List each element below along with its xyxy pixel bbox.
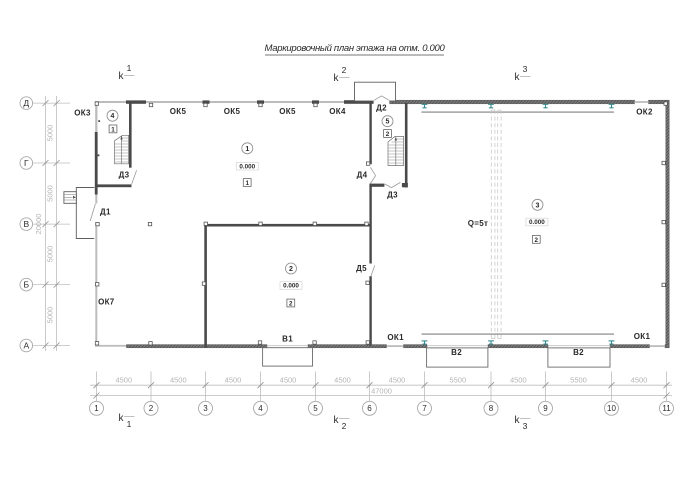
svg-text:А: А [23,341,29,351]
svg-text:3: 3 [203,404,208,413]
svg-text:4500: 4500 [280,376,297,385]
svg-text:Д4: Д4 [357,170,368,179]
svg-text:3: 3 [523,64,528,74]
svg-text:ОК5: ОК5 [279,107,296,116]
svg-text:5: 5 [386,119,390,126]
svg-text:10: 10 [607,404,616,413]
svg-text:1: 1 [245,146,249,153]
svg-text:1: 1 [127,419,132,429]
svg-text:1: 1 [127,63,132,73]
svg-text:5500: 5500 [449,376,466,385]
svg-text:4500: 4500 [334,376,351,385]
svg-text:2: 2 [386,131,390,138]
svg-text:4500: 4500 [631,376,648,385]
svg-text:2: 2 [289,266,293,273]
svg-text:Д5: Д5 [356,264,367,273]
svg-text:ОК7: ОК7 [98,298,115,307]
svg-text:В: В [23,219,29,229]
svg-text:4500: 4500 [170,376,187,385]
svg-text:ОК5: ОК5 [224,107,241,116]
svg-text:8: 8 [489,404,494,413]
svg-text:3: 3 [523,421,528,431]
svg-text:1: 1 [94,404,99,413]
svg-text:5000: 5000 [46,125,55,142]
svg-text:4500: 4500 [389,376,406,385]
svg-text:В2: В2 [451,348,462,357]
svg-text:Д1: Д1 [100,208,111,217]
svg-text:7: 7 [422,404,427,413]
svg-text:3: 3 [536,202,540,209]
svg-text:Б: Б [24,280,30,290]
svg-text:Д2: Д2 [376,104,387,113]
svg-text:9: 9 [543,404,548,413]
svg-text:ОК3: ОК3 [74,109,91,118]
svg-text:ОК1: ОК1 [387,333,404,342]
svg-text:Q=5т: Q=5т [468,219,488,228]
svg-text:4: 4 [258,404,263,413]
svg-text:4500: 4500 [510,376,527,385]
svg-text:2: 2 [149,404,154,413]
svg-text:2: 2 [342,421,347,431]
svg-text:4500: 4500 [225,376,242,385]
svg-text:4500: 4500 [115,376,132,385]
svg-text:Г: Г [24,158,29,168]
svg-text:47000: 47000 [371,387,392,396]
svg-text:5500: 5500 [570,376,587,385]
svg-text:5000: 5000 [46,307,55,324]
svg-text:ОК2: ОК2 [636,107,653,116]
svg-text:0.000: 0.000 [529,219,545,226]
svg-text:20000: 20000 [34,214,43,235]
svg-text:ОК5: ОК5 [170,107,187,116]
svg-text:Д3: Д3 [119,170,130,179]
svg-text:2: 2 [289,300,293,307]
svg-text:5000: 5000 [46,185,55,202]
svg-text:ОК1: ОК1 [634,332,651,341]
svg-text:1: 1 [111,126,115,133]
svg-text:ОК4: ОК4 [329,107,346,116]
svg-text:0.000: 0.000 [283,283,299,290]
svg-text:6: 6 [367,404,372,413]
svg-text:В1: В1 [282,335,293,344]
svg-text:Д3: Д3 [387,190,398,199]
svg-text:1: 1 [245,180,249,187]
svg-text:0.000: 0.000 [239,163,255,170]
svg-text:Маркировочный план этажа на от: Маркировочный план этажа на отм. 0.000 [265,43,446,54]
svg-text:В2: В2 [573,348,584,357]
svg-text:11: 11 [662,404,671,413]
svg-text:Д: Д [23,98,29,108]
svg-text:4: 4 [111,113,115,120]
svg-text:5000: 5000 [46,246,55,263]
svg-text:2: 2 [342,65,347,75]
svg-text:5: 5 [313,404,318,413]
svg-text:2: 2 [535,237,539,244]
